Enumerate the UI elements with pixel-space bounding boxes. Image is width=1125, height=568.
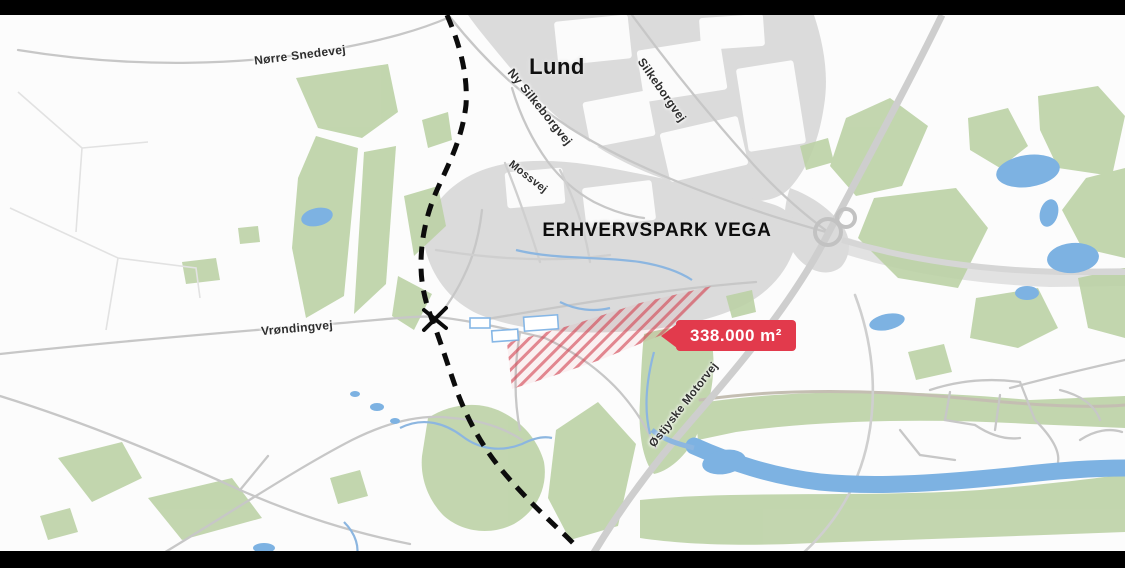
- letterbox-bottom-bar: [0, 551, 1125, 568]
- park-label-erhvervspark-vega: ERHVERVSPARK VEGA: [542, 220, 771, 242]
- area-badge-value: 338.000 m²: [690, 326, 782, 346]
- map-screenshot: Lund ERHVERVSPARK VEGA Nørre Snedevej Ny…: [0, 0, 1125, 568]
- badge-pointer-icon: [661, 324, 677, 348]
- field-boundaries: [10, 92, 200, 330]
- letterbox-top-bar: [0, 0, 1125, 15]
- town-label-lund: Lund: [529, 54, 585, 80]
- boundary-road-crossing-x: [424, 308, 446, 330]
- area-badge: 338.000 m²: [676, 320, 796, 351]
- map-canvas: [0, 0, 1125, 568]
